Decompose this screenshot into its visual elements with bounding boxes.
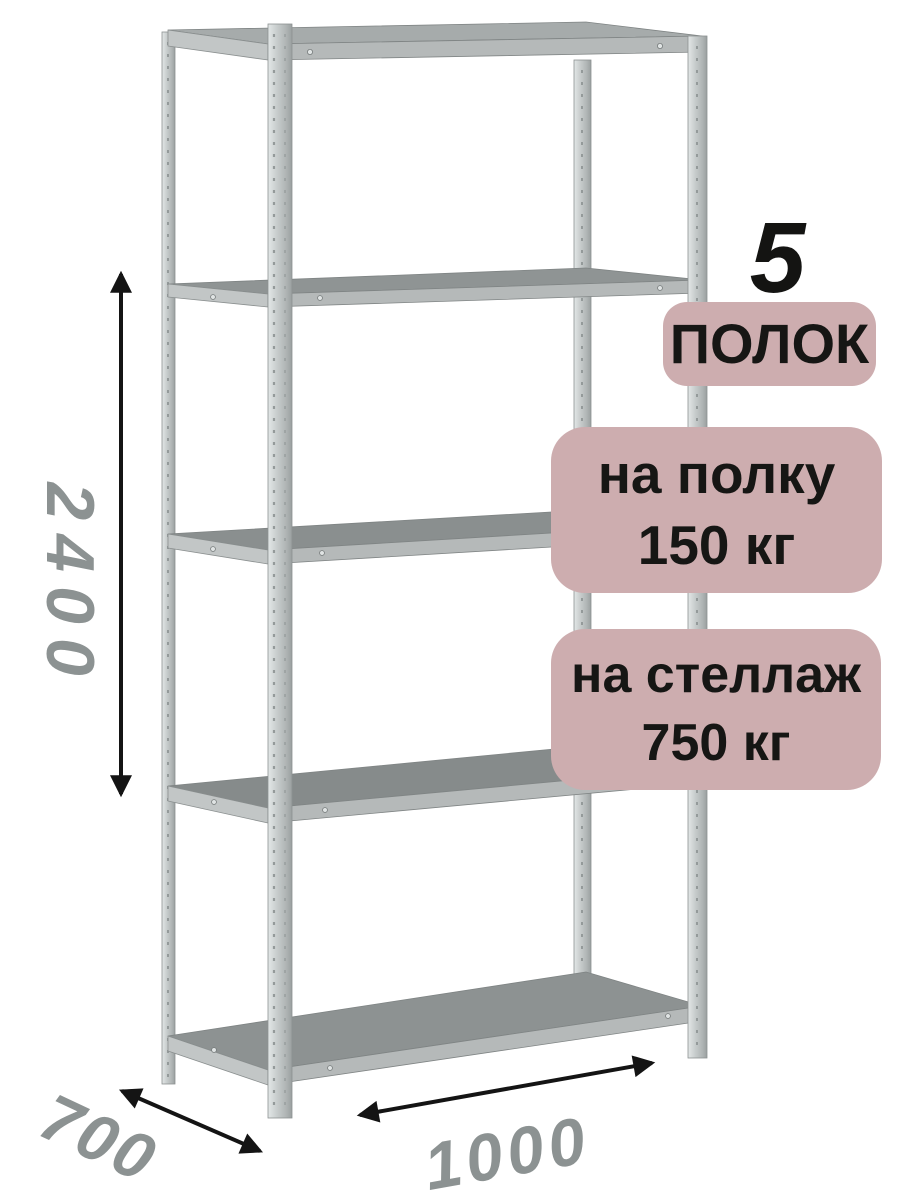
- shelf-capacity-line2: 150 кг: [638, 510, 795, 582]
- shelf-2: [168, 268, 702, 307]
- shelf-capacity-badge: на полку 150 кг: [551, 427, 882, 593]
- height-dimension-label: 2400: [36, 482, 104, 689]
- shelf-capacity-line1: на полку: [598, 439, 836, 511]
- rear-posts: [162, 32, 591, 1084]
- shelf-count-badge-label: ПОЛОК: [670, 308, 869, 381]
- shelving-rack-render: [0, 0, 900, 1200]
- rack-capacity-badge: на стеллаж 750 кг: [551, 629, 881, 790]
- product-spec-image: 2400 700 1000 5 ПОЛОК на полку 150 кг на…: [0, 0, 900, 1200]
- shelf-count-badge: ПОЛОК: [663, 302, 876, 386]
- width-dimension-arrow: [360, 1063, 652, 1115]
- rack-capacity-line2: 750 кг: [642, 710, 791, 778]
- rack-capacity-line1: на стеллаж: [571, 642, 861, 710]
- shelf-1: [168, 22, 702, 60]
- shelf-count-number: 5: [710, 208, 845, 308]
